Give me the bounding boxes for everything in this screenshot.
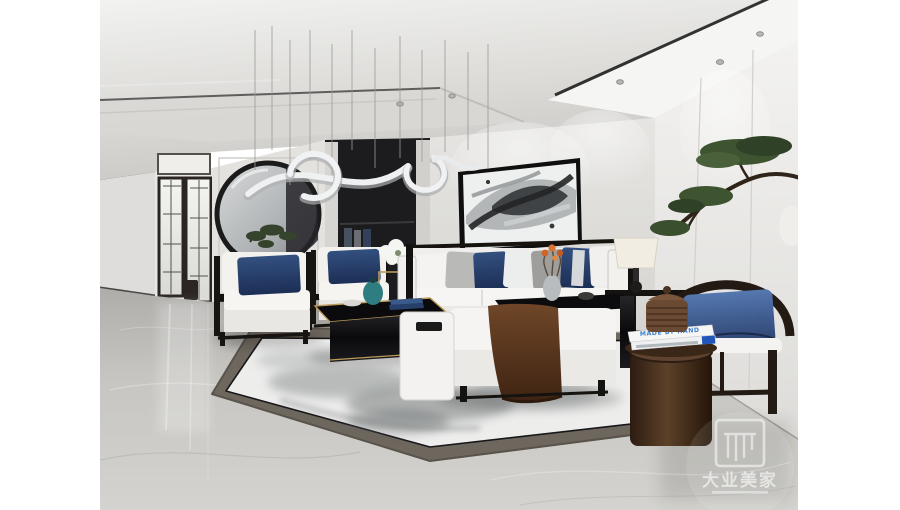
slot-handle	[416, 322, 442, 331]
left-side-wall	[100, 172, 155, 296]
hallway-stool	[184, 280, 198, 300]
watermark-text: 大业美家	[702, 470, 778, 491]
shelf-book	[363, 229, 371, 248]
living-room-photo: MADE BY HAND	[100, 0, 798, 510]
teapot	[578, 292, 594, 300]
shelf-book	[354, 230, 361, 248]
bowl	[343, 300, 361, 307]
navy-pillow	[237, 254, 301, 295]
armchair-left	[214, 252, 312, 346]
jar-knob	[663, 286, 671, 294]
shelf-book	[344, 228, 352, 248]
hallway	[155, 154, 212, 302]
living-room-scene: MADE BY HAND	[100, 0, 798, 510]
transom	[158, 154, 210, 174]
brown-throw	[488, 304, 562, 402]
screenshot-canvas: MADE BY HAND	[0, 0, 900, 510]
teal-jar	[363, 281, 383, 305]
wall-art	[458, 158, 582, 254]
bench-arm-panel	[400, 312, 454, 400]
lattice-door-left	[159, 178, 183, 296]
watermark-tagline	[712, 491, 768, 494]
blue-page-edge	[702, 336, 716, 345]
